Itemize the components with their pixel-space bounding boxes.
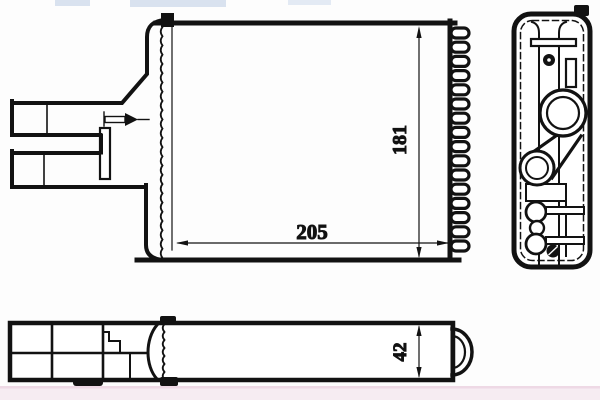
pipe-stem: [566, 59, 576, 87]
front-view: 181 205: [12, 13, 469, 260]
watermark-top: [55, 0, 331, 7]
fin: [451, 127, 469, 137]
watermark-patch: [130, 0, 226, 7]
fin-row: [451, 28, 469, 251]
watermark-patch: [288, 0, 331, 5]
heater-core-drawing: 181 205: [0, 0, 600, 400]
fin: [451, 56, 469, 66]
fin: [451, 85, 469, 95]
dim-depth-label: 42: [390, 343, 411, 362]
dimension-181: 181: [389, 26, 422, 258]
fin: [451, 113, 469, 123]
inlet-pipe-outline: [12, 101, 100, 135]
technical-drawing-page: 181 205: [0, 0, 600, 400]
clamp-tab: [160, 377, 178, 386]
watermark-band-line: [0, 386, 600, 389]
watermark-bottom-band: [0, 386, 600, 400]
fin: [451, 28, 469, 38]
outlet-pipe-outline: [12, 151, 146, 187]
fitting-bar: [546, 207, 584, 214]
bottom-body-outline: [10, 323, 453, 380]
fin: [451, 213, 469, 223]
fitting-circle: [526, 202, 546, 222]
fin: [451, 156, 469, 166]
clamp-tab: [160, 316, 176, 325]
fitting-circle: [526, 234, 546, 254]
screw-center: [547, 58, 551, 62]
fin: [451, 71, 469, 81]
fin: [451, 227, 469, 237]
gasket-scallop-line: [161, 27, 163, 258]
bottom-view: 42: [10, 316, 472, 386]
fin: [451, 184, 469, 194]
dim-height-label: 181: [389, 125, 411, 155]
watermark-patch: [55, 0, 90, 6]
fin: [451, 198, 469, 208]
arrowhead-left: [176, 240, 188, 245]
fitting-bar: [546, 237, 584, 244]
dim-width-label: 205: [296, 220, 328, 244]
cross-bar: [531, 39, 576, 46]
arrowhead-right: [437, 240, 449, 245]
arrowhead-up: [416, 26, 421, 38]
flow-direction-arrow-icon: [104, 112, 149, 126]
fin: [451, 241, 469, 251]
fin: [451, 170, 469, 180]
side-view: [514, 5, 590, 267]
dimension-205: 205: [176, 220, 449, 246]
mount-bump: [73, 378, 103, 386]
fin: [451, 142, 469, 152]
tank-top-outline: [12, 20, 163, 103]
lower-block: [526, 184, 566, 201]
arrowhead-down: [416, 247, 421, 258]
watermark-band: [0, 389, 600, 400]
fin: [451, 99, 469, 109]
fin: [451, 42, 469, 52]
